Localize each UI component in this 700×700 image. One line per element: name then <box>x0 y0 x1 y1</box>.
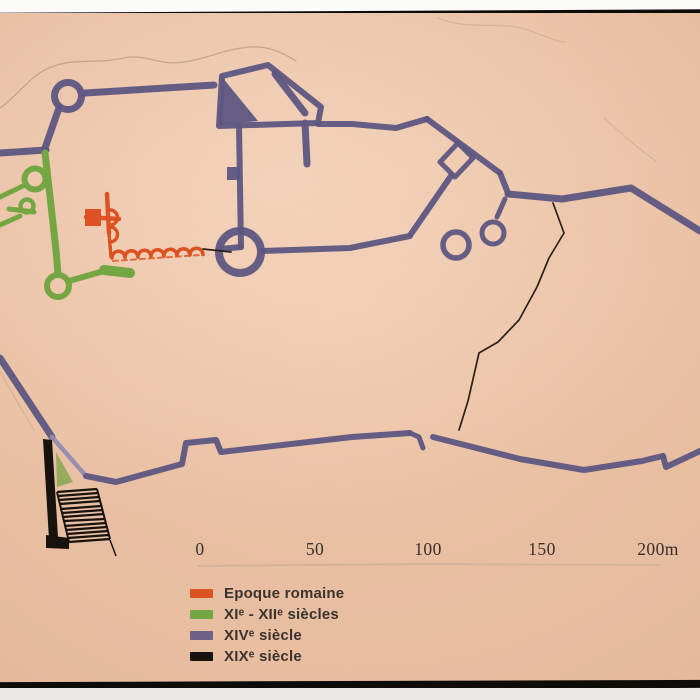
legend-label: XIXᵉ siècle <box>224 648 302 665</box>
tower-circle-green-s <box>47 275 69 297</box>
walls-11th-12th-century <box>0 153 130 487</box>
legend-label: XIᵉ - XIIᵉ siècles <box>224 606 339 623</box>
photo-margin-bottom <box>0 688 700 700</box>
legend: Epoque romaine XIᵉ - XIIᵉ siècles XIVᵉ s… <box>190 583 344 667</box>
stairs-19th-century <box>43 439 116 556</box>
legend-item: XIVᵉ siècle <box>190 625 344 646</box>
legend-swatch-14th <box>190 631 213 640</box>
legend-label: Epoque romaine <box>224 585 344 602</box>
legend-label: XIVᵉ siècle <box>224 627 302 644</box>
tower-circle-e2 <box>443 232 469 258</box>
tower-circle-green-n <box>25 169 46 190</box>
roman-structures <box>85 194 203 261</box>
legend-item: XIXᵉ siècle <box>190 646 344 667</box>
tower-circle-e1 <box>482 222 504 244</box>
legend-item: XIᵉ - XIIᵉ siècles <box>190 604 344 625</box>
legend-swatch-11th-12th <box>190 610 213 619</box>
scale-label: 0 <box>195 539 204 560</box>
scale-label: 200m <box>637 539 678 560</box>
legend-item: Epoque romaine <box>190 583 344 604</box>
stair-treads <box>57 489 110 542</box>
legend-swatch-19th <box>190 652 213 661</box>
scale-label: 100 <box>414 539 441 560</box>
scale-label: 150 <box>528 539 555 560</box>
photo: 0 50 100 150 200m Epoque romaine XIᵉ - X… <box>0 0 700 700</box>
legend-swatch-roman <box>190 589 213 598</box>
site-plan <box>0 0 700 700</box>
scale-label: 50 <box>306 539 324 560</box>
scale-rule-line <box>198 564 660 566</box>
